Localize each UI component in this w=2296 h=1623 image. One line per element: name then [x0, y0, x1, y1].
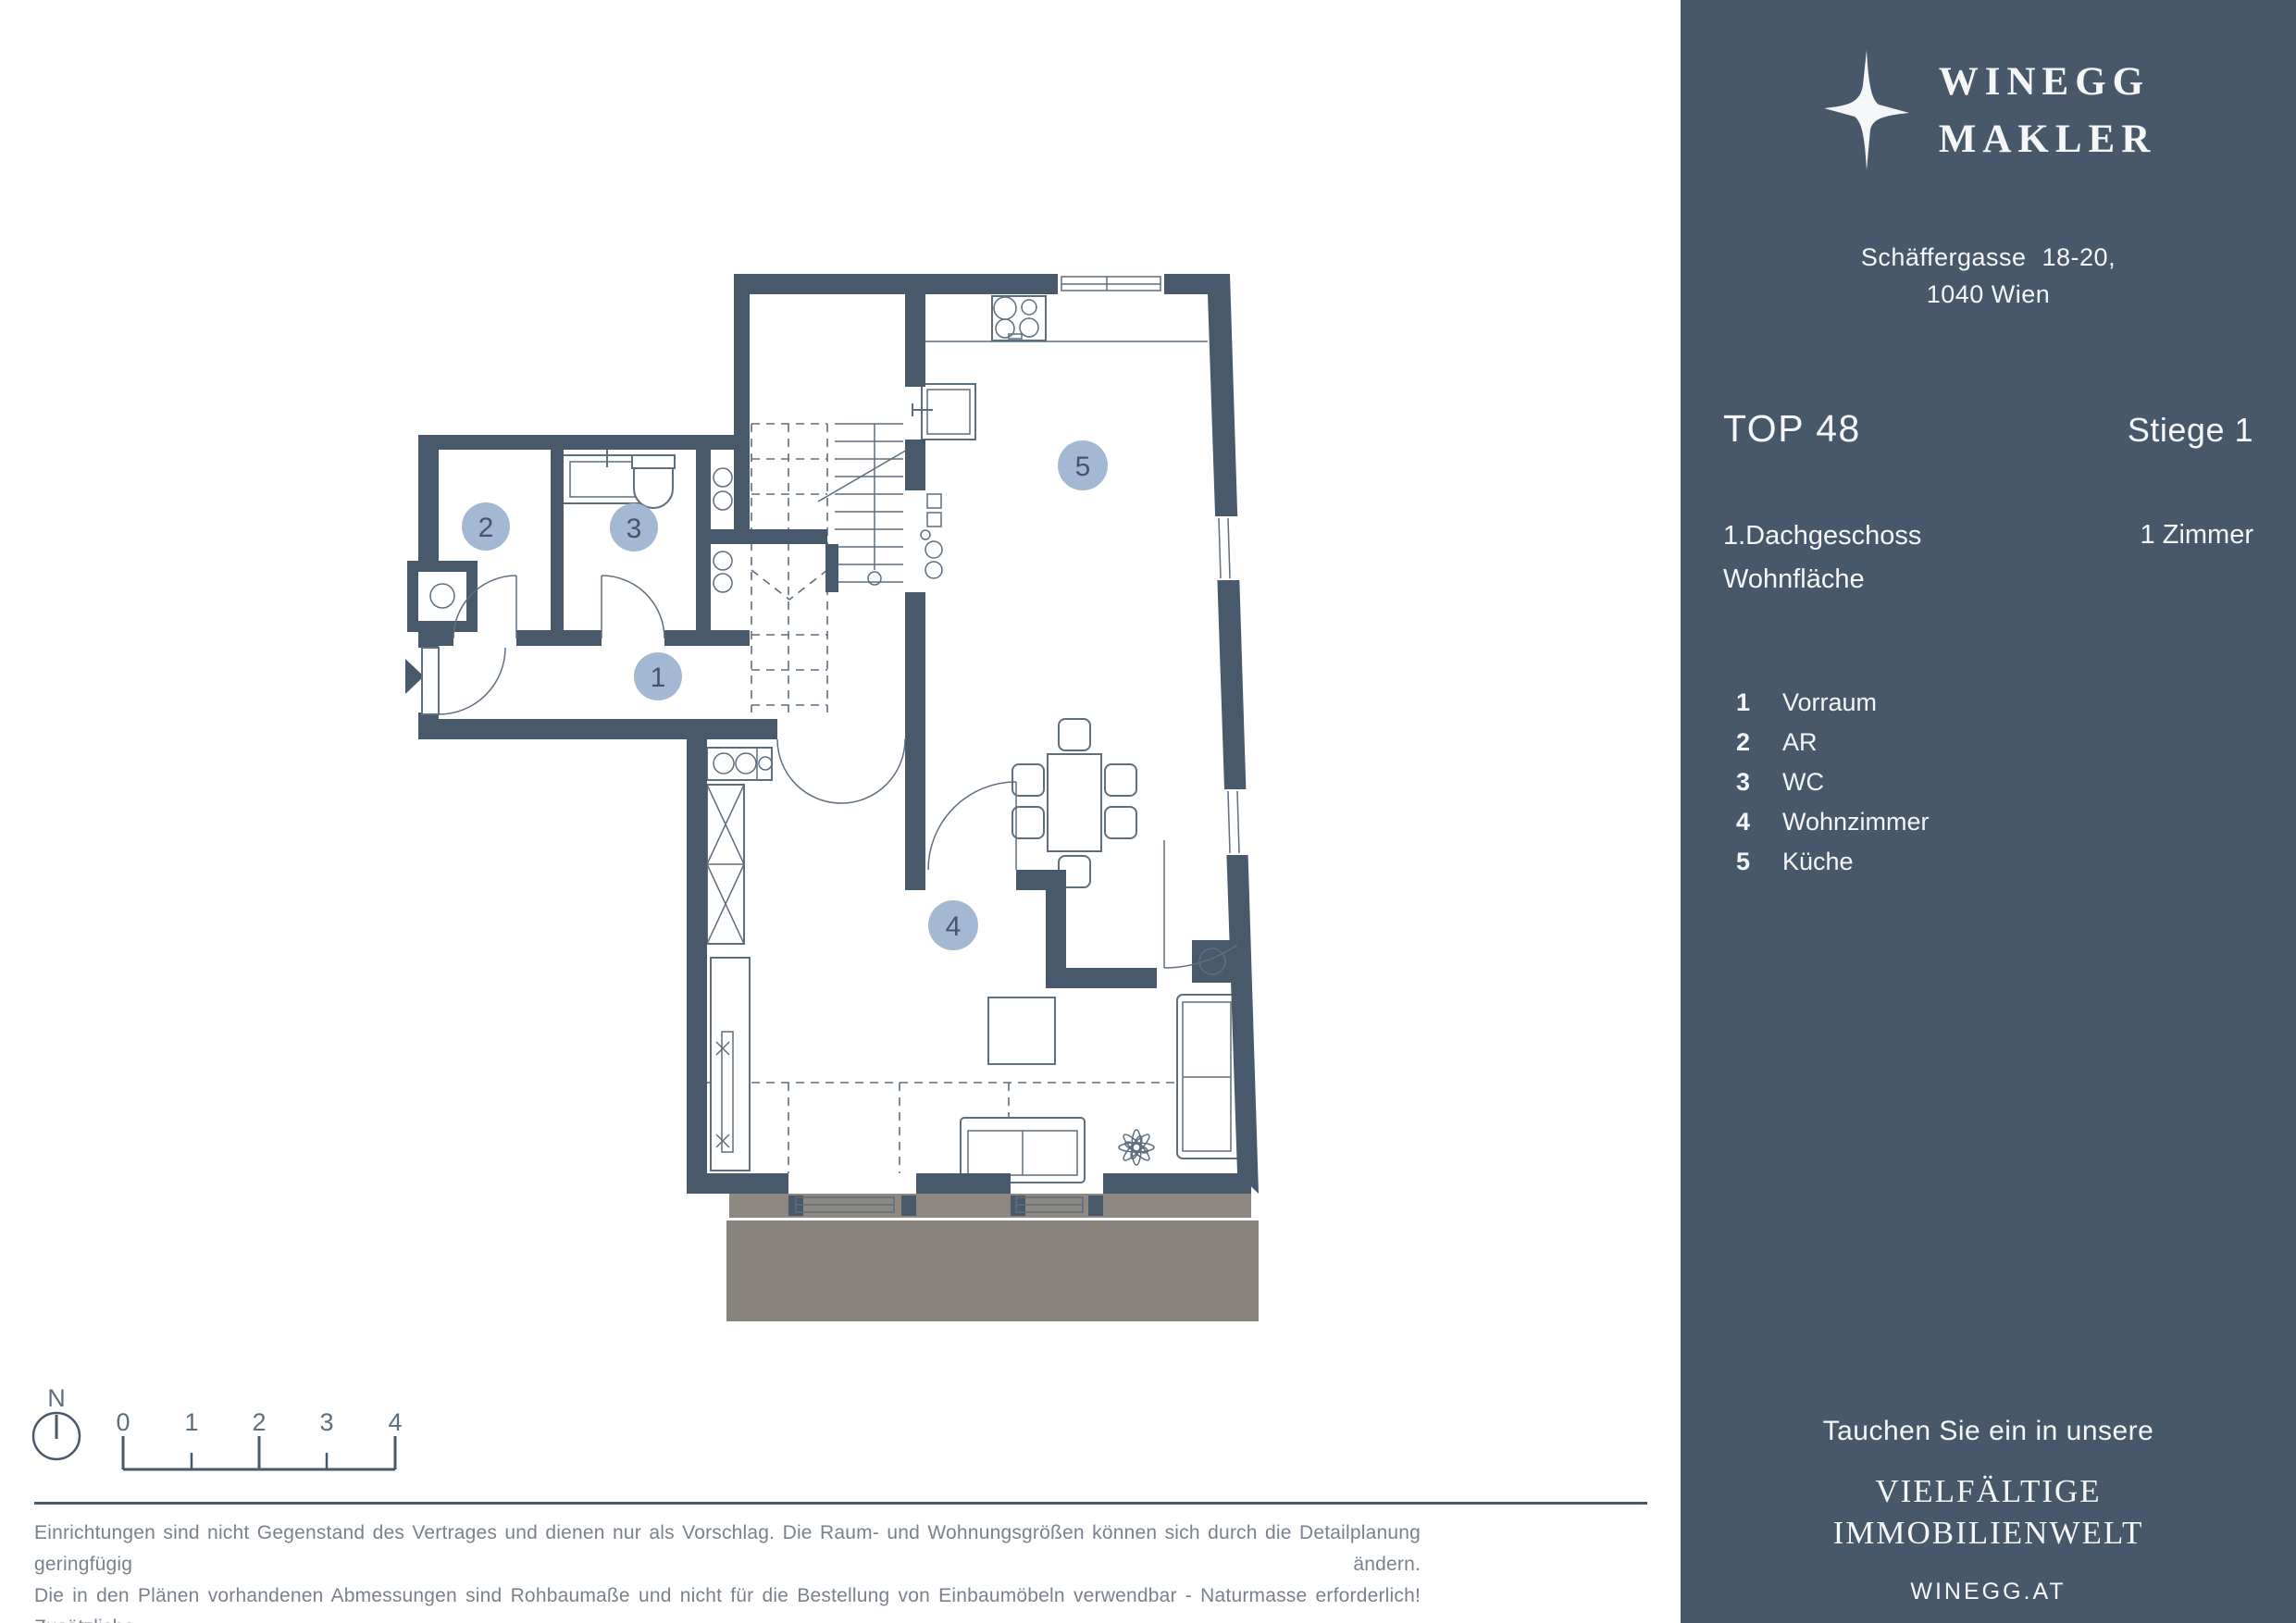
bathroom-fixtures — [563, 450, 675, 508]
legend-item: 1 Vorraum — [1736, 683, 2253, 723]
svg-text:3: 3 — [319, 1408, 333, 1436]
disclaimer: Einrichtungen sind nicht Gegenstand des … — [34, 1518, 1421, 1623]
walls — [407, 274, 1259, 1216]
legend-item: 5 Küche — [1736, 842, 2253, 882]
svg-text:4: 4 — [388, 1408, 402, 1436]
address-line2: 1040 Wien — [1681, 276, 2296, 313]
footer-brand-line1: VIELFÄLTIGE — [1681, 1473, 2296, 1510]
room-badge-1: 1 — [634, 652, 682, 700]
staircase-label: Stiege 1 — [2128, 411, 2253, 450]
room-badge-3: 3 — [610, 503, 658, 551]
rooms-count: 1 Zimmer — [2141, 520, 2253, 601]
svg-text:2: 2 — [252, 1408, 266, 1436]
winegg-logo: WINEGG MAKLER — [1681, 28, 2296, 194]
legend-num: 3 — [1736, 768, 1782, 797]
unit-number: TOP 48 — [1723, 407, 1861, 451]
legend-num: 5 — [1736, 848, 1782, 876]
address-line1: Schäffergasse 18-20, — [1681, 239, 2296, 276]
svg-text:0: 0 — [116, 1408, 130, 1436]
logo-line2: MAKLER — [1939, 111, 2157, 168]
legend-label: AR — [1782, 728, 1818, 757]
svg-text:1: 1 — [651, 663, 666, 693]
svg-text:4: 4 — [946, 911, 962, 942]
legend-num: 2 — [1736, 728, 1782, 757]
room-badge-4: 4 — [928, 900, 978, 950]
floorplan-page: 1 2 3 4 5 N — [0, 0, 2296, 1623]
unit-header: TOP 48 Stiege 1 — [1723, 407, 2253, 451]
sidebar: WINEGG MAKLER Schäffergasse 18-20, 1040 … — [1681, 0, 2296, 1623]
property-address: Schäffergasse 18-20, 1040 Wien — [1681, 239, 2296, 313]
legend-label: WC — [1782, 768, 1824, 797]
legend-item: 4 Wohnzimmer — [1736, 802, 2253, 842]
plan-panel: 1 2 3 4 5 N — [0, 0, 1681, 1623]
legend-label: Küche — [1782, 848, 1854, 876]
area-label: Wohnfläche — [1723, 558, 1921, 601]
svg-text:3: 3 — [627, 514, 642, 544]
footer-website: WINEGG.AT — [1681, 1579, 2296, 1605]
logo-line1: WINEGG — [1939, 54, 2157, 111]
footer-divider — [34, 1502, 1647, 1505]
kitchen-fixtures — [912, 296, 1208, 440]
disclaimer-line: Die in den Plänen vorhandenen Abmessunge… — [34, 1580, 1421, 1623]
room-badge-5: 5 — [1058, 440, 1108, 490]
north-indicator-icon: N — [33, 1384, 80, 1459]
room-badge-2: 2 — [462, 502, 510, 551]
legend-item: 3 WC — [1736, 762, 2253, 802]
room-legend: 1 Vorraum 2 AR 3 WC 4 Wohnzimmer 5 Küche — [1736, 683, 2253, 882]
plant-icon — [1119, 1130, 1154, 1165]
legend-num: 4 — [1736, 808, 1782, 836]
floorplan-svg: 1 2 3 4 5 N — [0, 0, 1681, 1623]
winegg-star-icon — [1820, 37, 1913, 185]
svg-text:1: 1 — [184, 1408, 198, 1436]
disclaimer-line: Einrichtungen sind nicht Gegenstand des … — [34, 1518, 1421, 1580]
legend-label: Vorraum — [1782, 688, 1877, 717]
floor-label: 1.Dachgeschoss — [1723, 514, 1921, 558]
legend-num: 1 — [1736, 688, 1782, 717]
svg-text:5: 5 — [1075, 452, 1091, 482]
living-furniture — [707, 719, 1242, 1183]
scale-bar: 0 1 2 3 4 — [116, 1408, 402, 1469]
floor-info: 1.Dachgeschoss Wohnfläche 1 Zimmer — [1723, 514, 2253, 601]
footer-brand-line2: IMMOBILIENWELT — [1681, 1515, 2296, 1552]
footer-tagline: Tauchen Sie ein in unsere — [1681, 1416, 2296, 1447]
svg-text:N: N — [47, 1384, 66, 1412]
legend-item: 2 AR — [1736, 723, 2253, 762]
legend-label: Wohnzimmer — [1782, 808, 1930, 836]
svg-text:2: 2 — [478, 513, 494, 543]
